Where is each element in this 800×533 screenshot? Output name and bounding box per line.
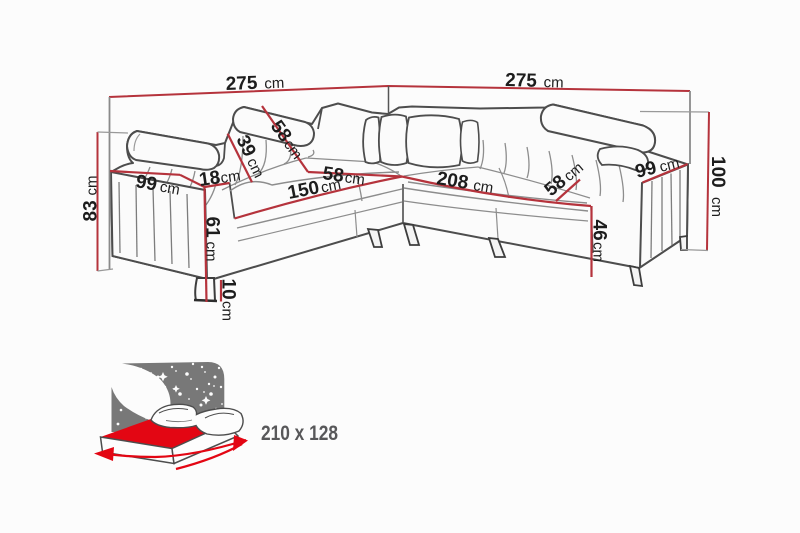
svg-text:61: 61 [202, 217, 223, 239]
svg-text:cm: cm [219, 167, 241, 187]
svg-text:10: 10 [218, 279, 239, 300]
svg-text:cm: cm [344, 169, 366, 189]
svg-text:cm: cm [472, 177, 494, 197]
svg-text:275: 275 [505, 70, 538, 92]
svg-text:cm: cm [708, 197, 725, 217]
svg-text:18: 18 [198, 167, 222, 191]
svg-text:cm: cm [203, 242, 220, 262]
svg-text:cm: cm [543, 74, 563, 92]
svg-text:cm: cm [84, 176, 101, 196]
svg-text:cm: cm [159, 178, 182, 198]
svg-text:100: 100 [707, 156, 728, 188]
svg-text:275: 275 [225, 73, 258, 95]
svg-text:99: 99 [134, 171, 158, 195]
svg-text:cm: cm [590, 242, 607, 262]
svg-text:cm: cm [264, 75, 285, 93]
svg-text:210 x 128: 210 x 128 [261, 422, 338, 445]
svg-text:46: 46 [589, 220, 610, 241]
svg-text:83: 83 [81, 200, 102, 221]
svg-text:cm: cm [219, 301, 236, 321]
